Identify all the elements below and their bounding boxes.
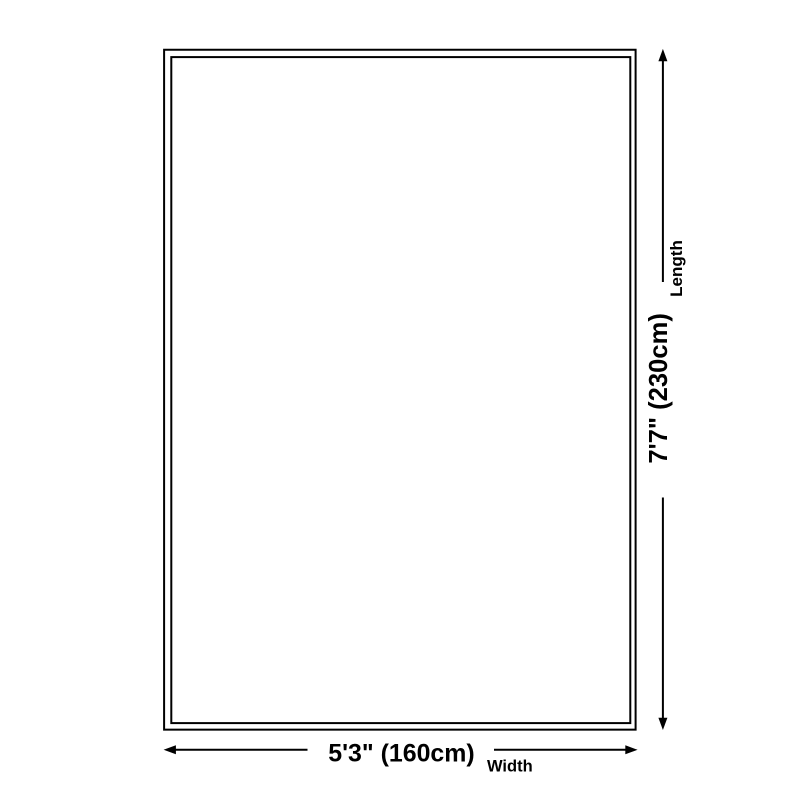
svg-text:5'3" (160cm): 5'3" (160cm) [328, 739, 474, 767]
svg-text:7'7" (230cm): 7'7" (230cm) [645, 313, 673, 464]
svg-text:Length: Length [667, 240, 686, 297]
svg-text:Width: Width [487, 757, 533, 775]
